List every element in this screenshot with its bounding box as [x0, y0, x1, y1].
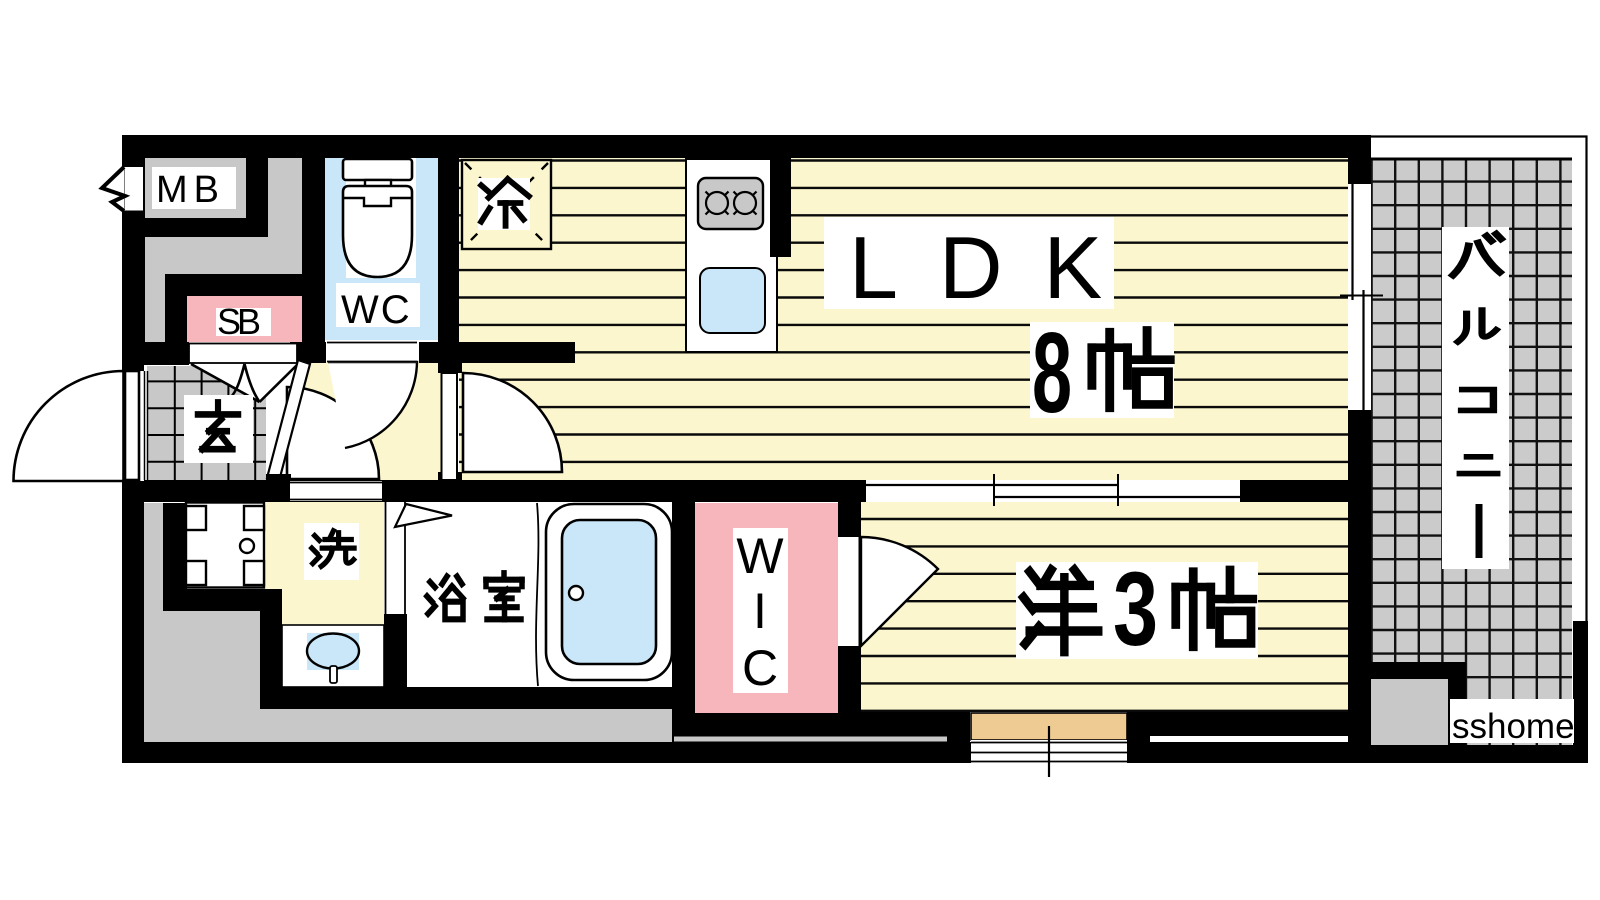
svg-text:3: 3 — [1113, 550, 1158, 668]
svg-text:SB: SB — [217, 301, 269, 342]
svg-text:I: I — [753, 583, 767, 639]
svg-text:MB: MB — [156, 169, 225, 211]
svg-text:WC: WC — [341, 288, 412, 332]
svg-text:LDK: LDK — [849, 218, 1143, 317]
svg-text:8: 8 — [1032, 310, 1072, 437]
svg-text:sshome: sshome — [1452, 707, 1575, 746]
svg-text:W: W — [736, 528, 784, 584]
svg-text:C: C — [742, 640, 778, 696]
